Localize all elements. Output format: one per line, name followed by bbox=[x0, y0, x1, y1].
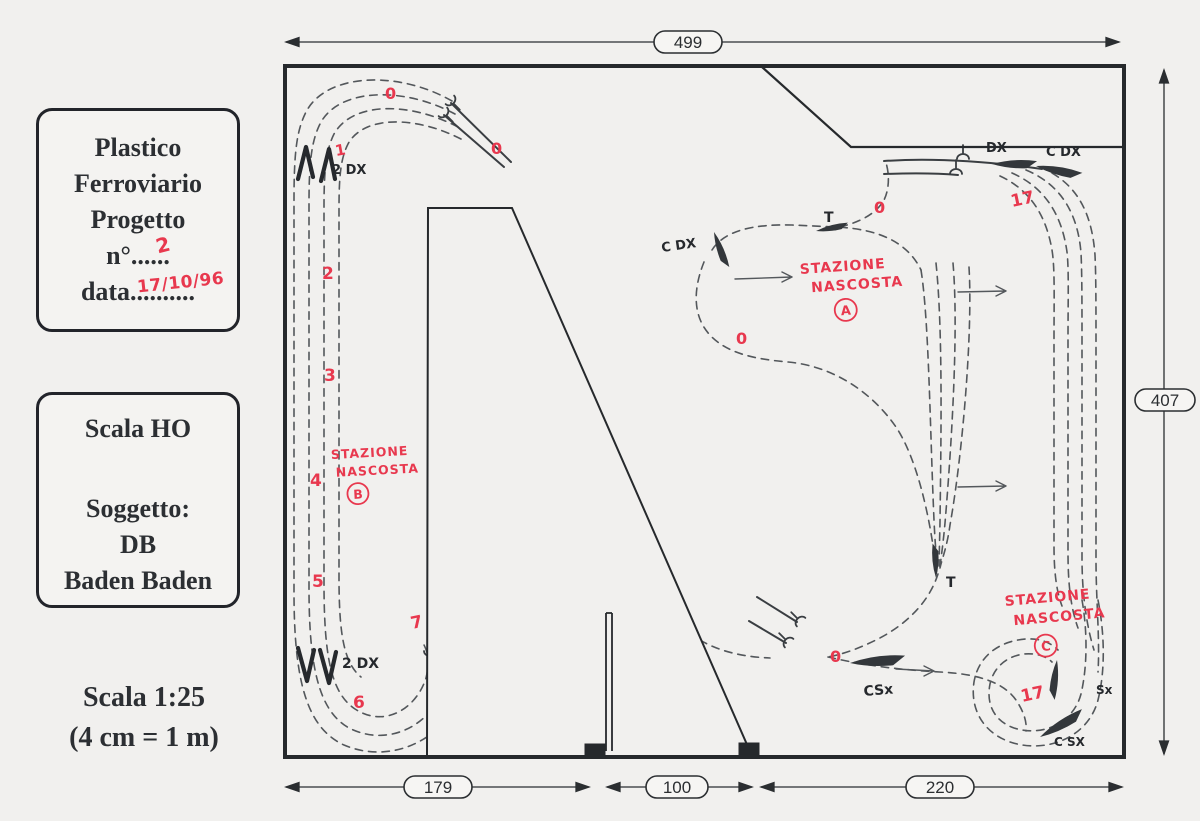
zero-mark: 0 bbox=[736, 329, 747, 348]
turnout-icon bbox=[992, 155, 1037, 171]
direction-arrow bbox=[735, 272, 792, 282]
turnout-icons bbox=[713, 155, 1086, 738]
hidden-station-a: STAZIONE NASCOSTA A bbox=[799, 255, 905, 324]
turnout-icon bbox=[1046, 660, 1065, 700]
dim-top-value: 499 bbox=[674, 33, 702, 52]
plan-outline bbox=[285, 66, 1124, 757]
switch-label: T bbox=[824, 210, 834, 226]
station-name: NASCOSTA bbox=[1013, 605, 1106, 629]
station-letter: C bbox=[1041, 639, 1052, 655]
dimension-bottom-middle: 100 bbox=[607, 776, 752, 798]
zero-mark: 0 bbox=[874, 198, 885, 217]
switch-label: 2 DX bbox=[332, 163, 366, 178]
middle-loop-tracks bbox=[696, 163, 970, 657]
station-name: NASCOSTA bbox=[811, 274, 904, 296]
wall-foot bbox=[739, 743, 759, 757]
track-count: 17 bbox=[1019, 682, 1046, 706]
route-number: 1 bbox=[334, 140, 347, 160]
route-number: 2 bbox=[322, 264, 334, 284]
switch-label: C DX bbox=[1046, 145, 1081, 160]
zero-mark: 0 bbox=[491, 139, 502, 158]
route-number: 3 bbox=[324, 366, 336, 386]
dimension-right: 407 bbox=[1135, 70, 1195, 754]
layout-plan-svg: 499 407 179 100 220 bbox=[0, 0, 1200, 821]
station-letter: A bbox=[840, 304, 851, 320]
route-number: 7 bbox=[409, 612, 425, 634]
station-name: STAZIONE bbox=[1004, 587, 1091, 610]
wall-foot bbox=[585, 744, 605, 757]
hidden-station-b: STAZIONE NASCOSTA B bbox=[330, 442, 420, 505]
buffer-stop-icon bbox=[950, 160, 962, 174]
center-cutout bbox=[427, 208, 752, 756]
direction-arrow bbox=[958, 286, 1006, 296]
turnout-icon bbox=[850, 652, 905, 668]
switch-label: T bbox=[946, 575, 956, 591]
route-number: 5 bbox=[312, 572, 324, 592]
switch-label: CSx bbox=[863, 681, 894, 700]
switch-label: C SX bbox=[1054, 735, 1086, 749]
route-number: 6 bbox=[353, 693, 365, 713]
track-count: 17 bbox=[1009, 187, 1036, 211]
switch-label: Sx bbox=[1096, 683, 1113, 697]
zero-mark: 0 bbox=[830, 647, 841, 666]
dim-bottom-left-value: 179 bbox=[424, 778, 452, 797]
direction-arrow bbox=[958, 481, 1006, 491]
dim-bottom-right-value: 220 bbox=[926, 778, 954, 797]
dim-right-value: 407 bbox=[1151, 391, 1179, 410]
dimension-bottom-right: 220 bbox=[761, 776, 1122, 798]
station-name: STAZIONE bbox=[330, 443, 408, 462]
top-right-notch bbox=[762, 67, 1124, 147]
station-letter: B bbox=[353, 486, 363, 501]
switch-chevrons bbox=[298, 147, 336, 683]
dim-bottom-middle-value: 100 bbox=[663, 778, 691, 797]
station-name: STAZIONE bbox=[799, 256, 886, 278]
direction-arrows bbox=[735, 272, 1006, 676]
switch-label: DX bbox=[986, 141, 1007, 156]
switch-label: C DX bbox=[660, 236, 697, 256]
station-name: NASCOSTA bbox=[335, 460, 419, 479]
dimension-bottom-left: 179 bbox=[286, 776, 589, 798]
turnout-icon bbox=[1036, 709, 1086, 738]
zero-mark: 0 bbox=[385, 84, 396, 103]
switch-chevron-icon bbox=[298, 648, 314, 681]
scanned-plan-page: Plastico Ferroviario Progetto n°...... 2… bbox=[0, 0, 1200, 821]
switch-label: 2 DX bbox=[342, 656, 379, 672]
route-number: 4 bbox=[310, 471, 322, 491]
dimension-top: 499 bbox=[286, 31, 1119, 53]
switch-chevron-icon bbox=[298, 147, 313, 179]
